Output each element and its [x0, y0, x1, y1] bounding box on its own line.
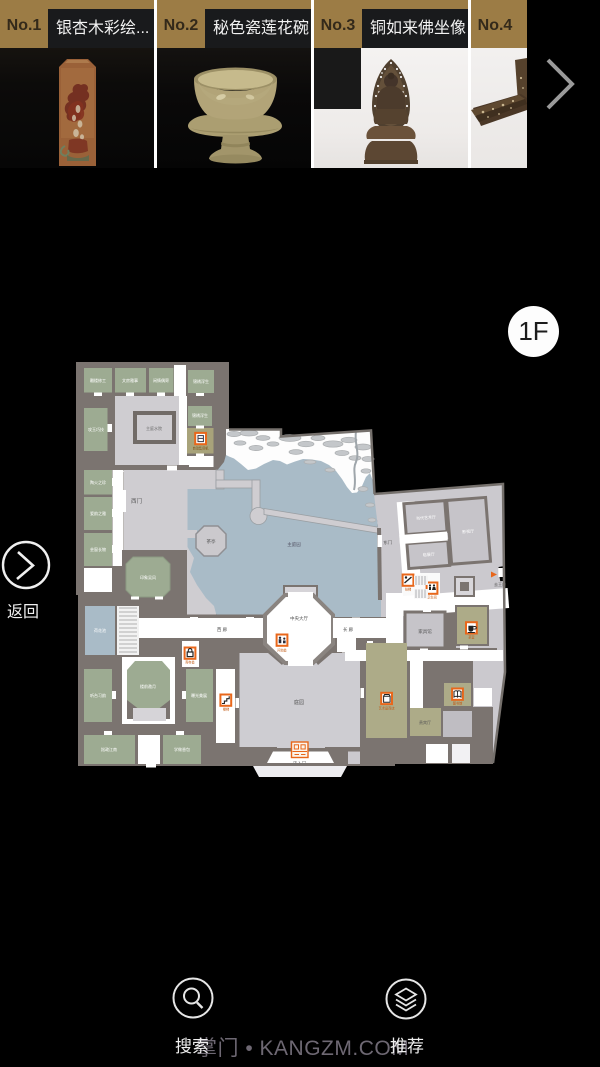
- svg-text:贵宾厅: 贵宾厅: [419, 719, 431, 725]
- svg-text:艺术品商店: 艺术品商店: [379, 706, 395, 711]
- svg-text:问询处: 问询处: [277, 648, 287, 653]
- svg-text:茶亭: 茶亭: [207, 538, 216, 544]
- svg-text:雕楼修工: 雕楼修工: [90, 377, 106, 383]
- svg-text:楼前邀月: 楼前邀月: [140, 683, 156, 689]
- svg-text:主庭水院: 主庭水院: [146, 425, 162, 431]
- svg-text:拙政江南: 拙政江南: [101, 746, 117, 752]
- svg-text:图书馆: 图书馆: [453, 701, 463, 706]
- svg-text:文房雅事: 文房雅事: [122, 377, 138, 383]
- svg-text:锦绣浮生: 锦绣浮生: [193, 378, 209, 384]
- svg-text:闲情偶寄: 闲情偶寄: [153, 377, 169, 383]
- svg-text:攻玉巧技: 攻玉巧技: [88, 426, 104, 432]
- svg-text:印象吴风: 印象吴风: [140, 574, 156, 580]
- svg-text:锦绣浮生: 锦绣浮生: [192, 412, 208, 418]
- svg-text:扶梯: 扶梯: [405, 587, 412, 592]
- svg-text:长 廊: 长 廊: [343, 626, 354, 633]
- svg-text:学做香包: 学做香包: [174, 746, 190, 752]
- svg-text:芸窗长物: 芸窗长物: [90, 546, 106, 552]
- svg-text:陶火之珍: 陶火之珍: [90, 479, 106, 485]
- svg-text:卫生间: 卫生间: [427, 595, 437, 600]
- svg-text:西门: 西门: [131, 497, 142, 505]
- svg-text:临展厅: 临展厅: [423, 551, 435, 558]
- svg-text:荷花池: 荷花池: [94, 627, 106, 633]
- svg-text:曝光美展: 曝光美展: [191, 692, 207, 698]
- svg-text:听台习韵: 听台习韵: [90, 692, 106, 698]
- svg-text:中央大厅: 中央大厅: [290, 615, 308, 622]
- svg-text:楼梯: 楼梯: [223, 707, 230, 712]
- svg-text:家具馆: 家具馆: [418, 628, 432, 635]
- svg-text:主庭园: 主庭园: [287, 541, 301, 548]
- svg-text:茶室: 茶室: [468, 634, 474, 639]
- svg-text:庭园: 庭园: [294, 699, 304, 706]
- svg-text:自动售货机: 自动售货机: [193, 446, 210, 451]
- svg-text:西 廊: 西 廊: [217, 626, 228, 633]
- svg-text:影视厅: 影视厅: [462, 527, 474, 534]
- svg-text:瓷韵之雅: 瓷韵之雅: [90, 510, 106, 516]
- svg-text:寄存处: 寄存处: [185, 660, 195, 665]
